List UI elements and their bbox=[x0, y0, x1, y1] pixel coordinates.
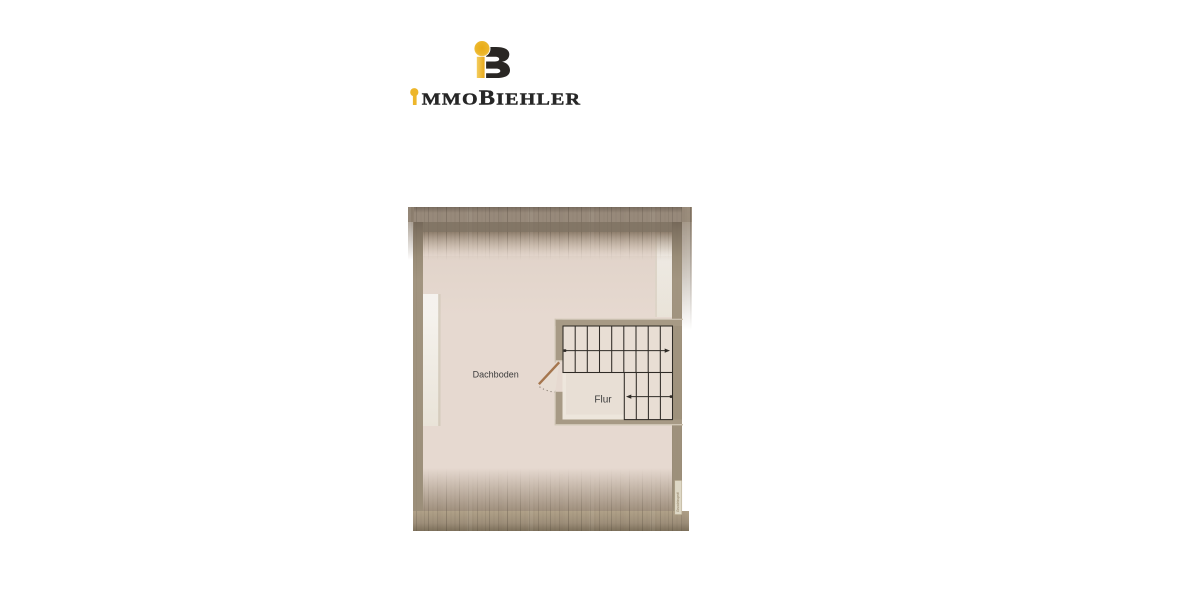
svg-text:Grundrissprofi: Grundrissprofi bbox=[676, 492, 680, 512]
svg-text:MMOBIEHLER: MMOBIEHLER bbox=[422, 86, 581, 109]
svg-text:Flur: Flur bbox=[594, 395, 612, 406]
svg-text:Dachboden: Dachboden bbox=[473, 369, 519, 379]
